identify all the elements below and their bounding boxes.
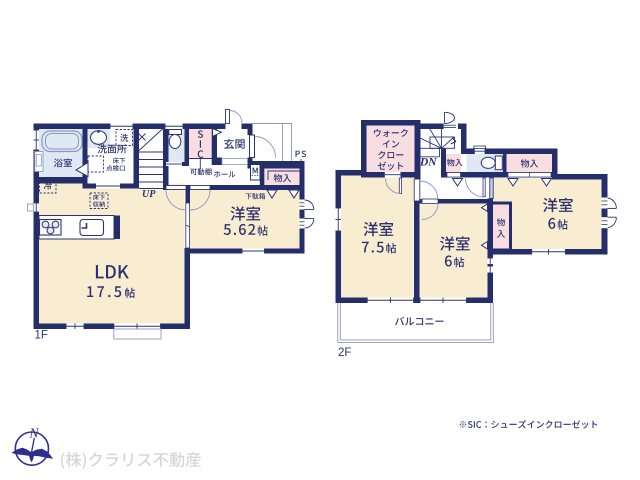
svg-text:DN: DN [419, 157, 437, 169]
svg-text:1F: 1F [35, 330, 48, 342]
svg-text:UP: UP [142, 189, 156, 200]
svg-text:2F: 2F [338, 347, 351, 359]
